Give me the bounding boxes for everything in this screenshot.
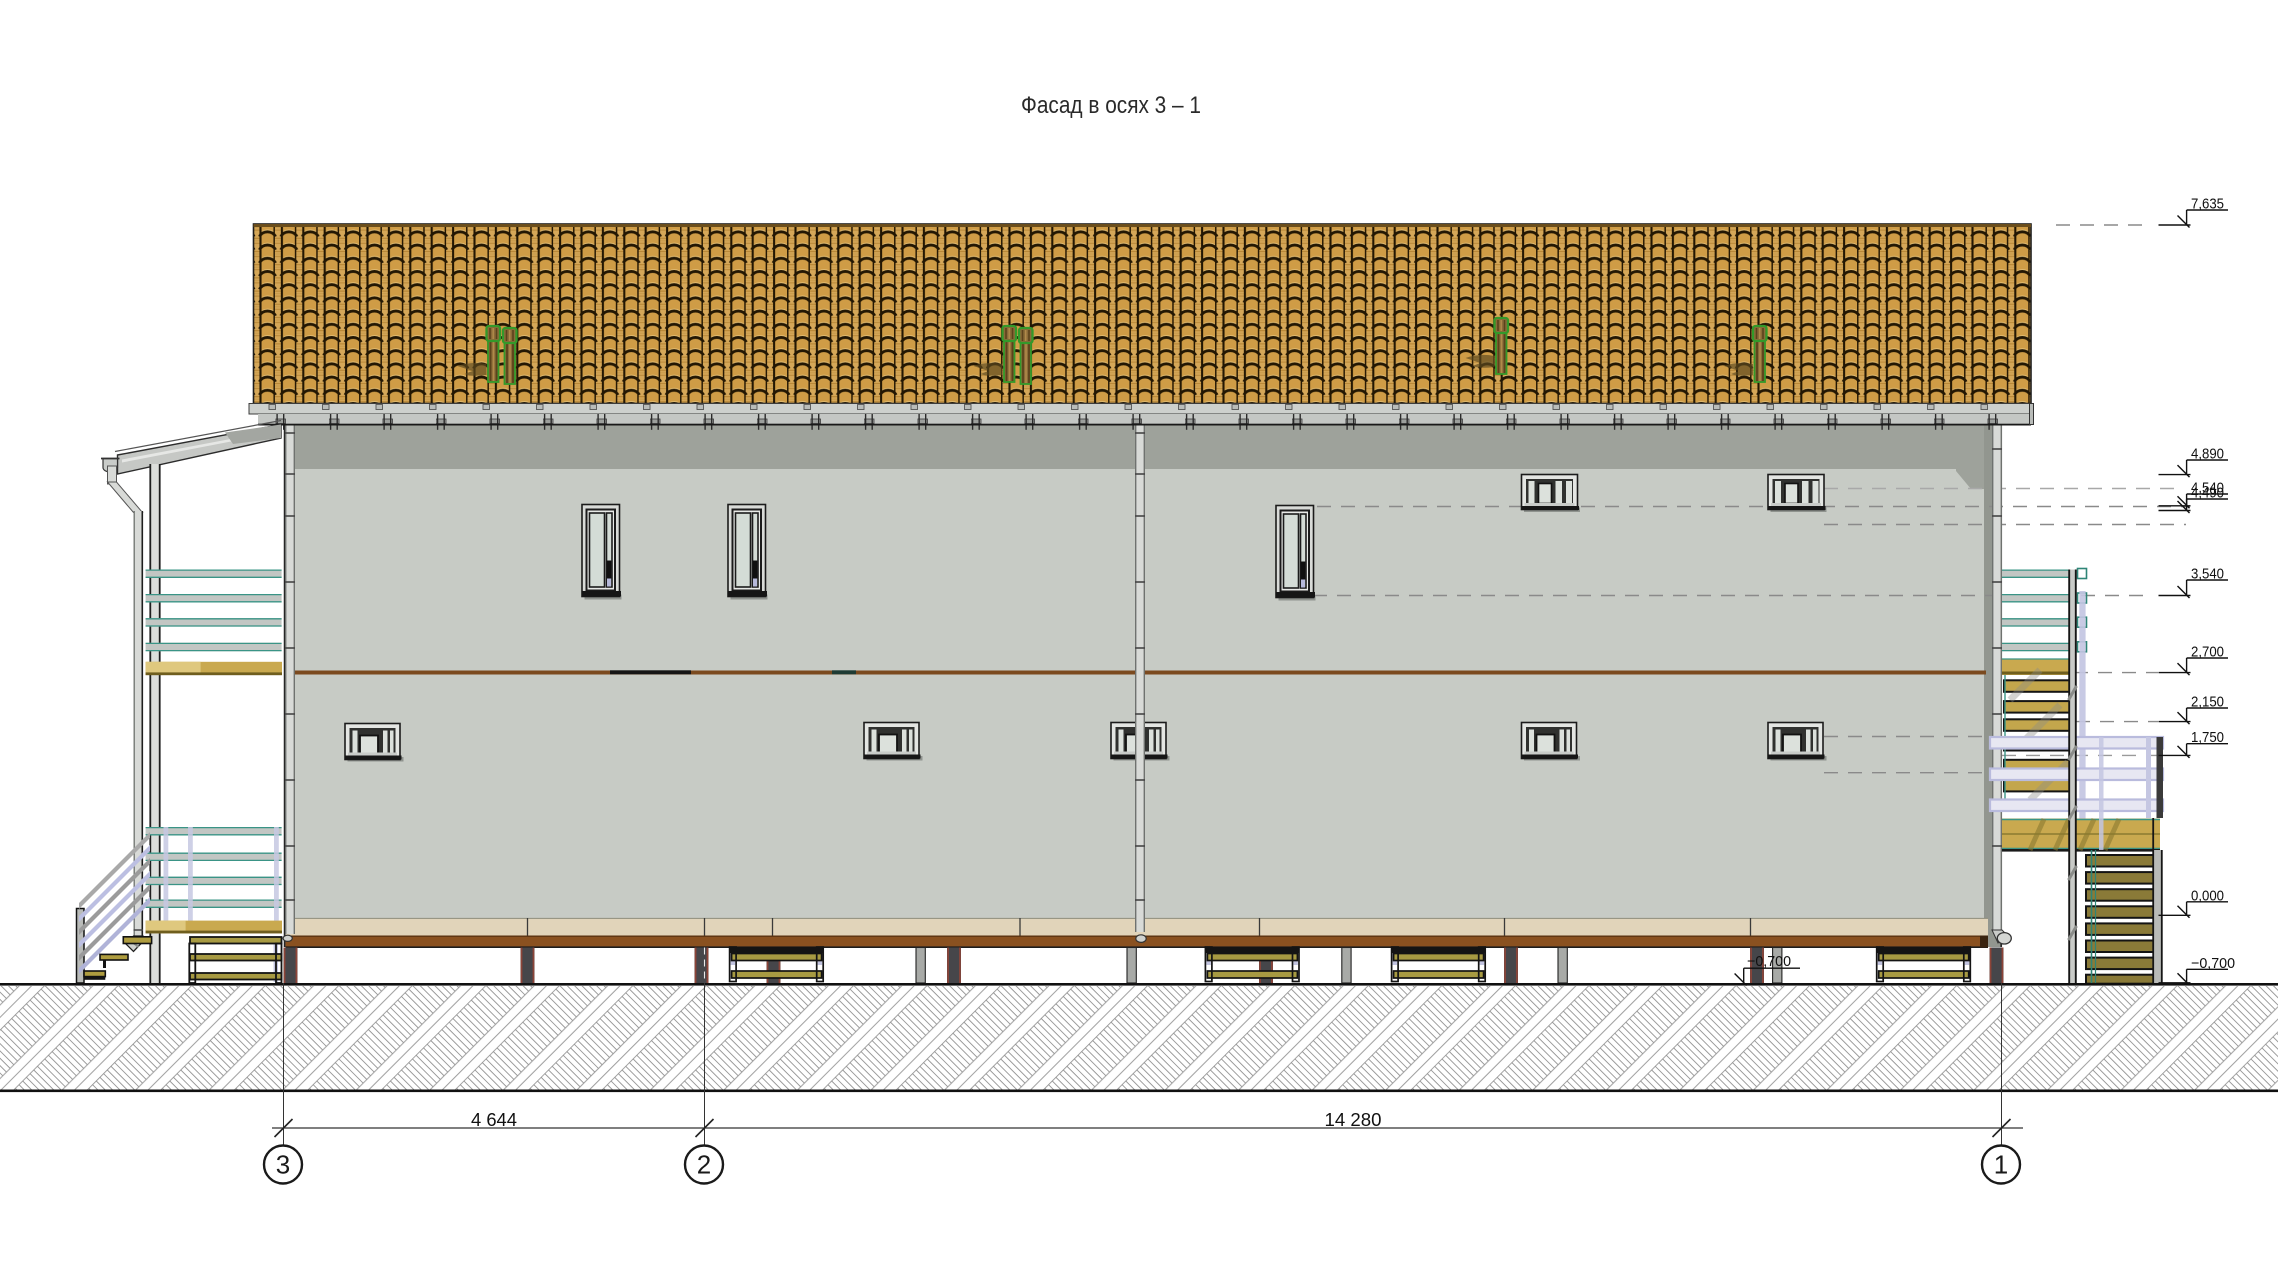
- svg-text:2,700: 2,700: [2191, 644, 2224, 661]
- svg-text:−0,700: −0,700: [2191, 955, 2235, 972]
- svg-text:0,000: 0,000: [2191, 887, 2224, 904]
- svg-text:1,750: 1,750: [2191, 729, 2224, 746]
- svg-text:14 280: 14 280: [1325, 1110, 1382, 1130]
- svg-text:2,150: 2,150: [2191, 694, 2224, 711]
- svg-text:1: 1: [1994, 1150, 2008, 1180]
- svg-text:2: 2: [697, 1150, 711, 1180]
- svg-text:4,490: 4,490: [2191, 485, 2224, 502]
- svg-text:4,890: 4,890: [2191, 446, 2224, 463]
- svg-text:−0,700: −0,700: [1747, 953, 1791, 970]
- svg-text:3,540: 3,540: [2191, 566, 2224, 583]
- svg-text:7,635: 7,635: [2191, 196, 2224, 213]
- svg-text:4 644: 4 644: [471, 1110, 517, 1130]
- svg-text:3: 3: [276, 1150, 290, 1180]
- svg-text:Фасад в осях 3 – 1: Фасад в осях 3 – 1: [1021, 92, 1201, 119]
